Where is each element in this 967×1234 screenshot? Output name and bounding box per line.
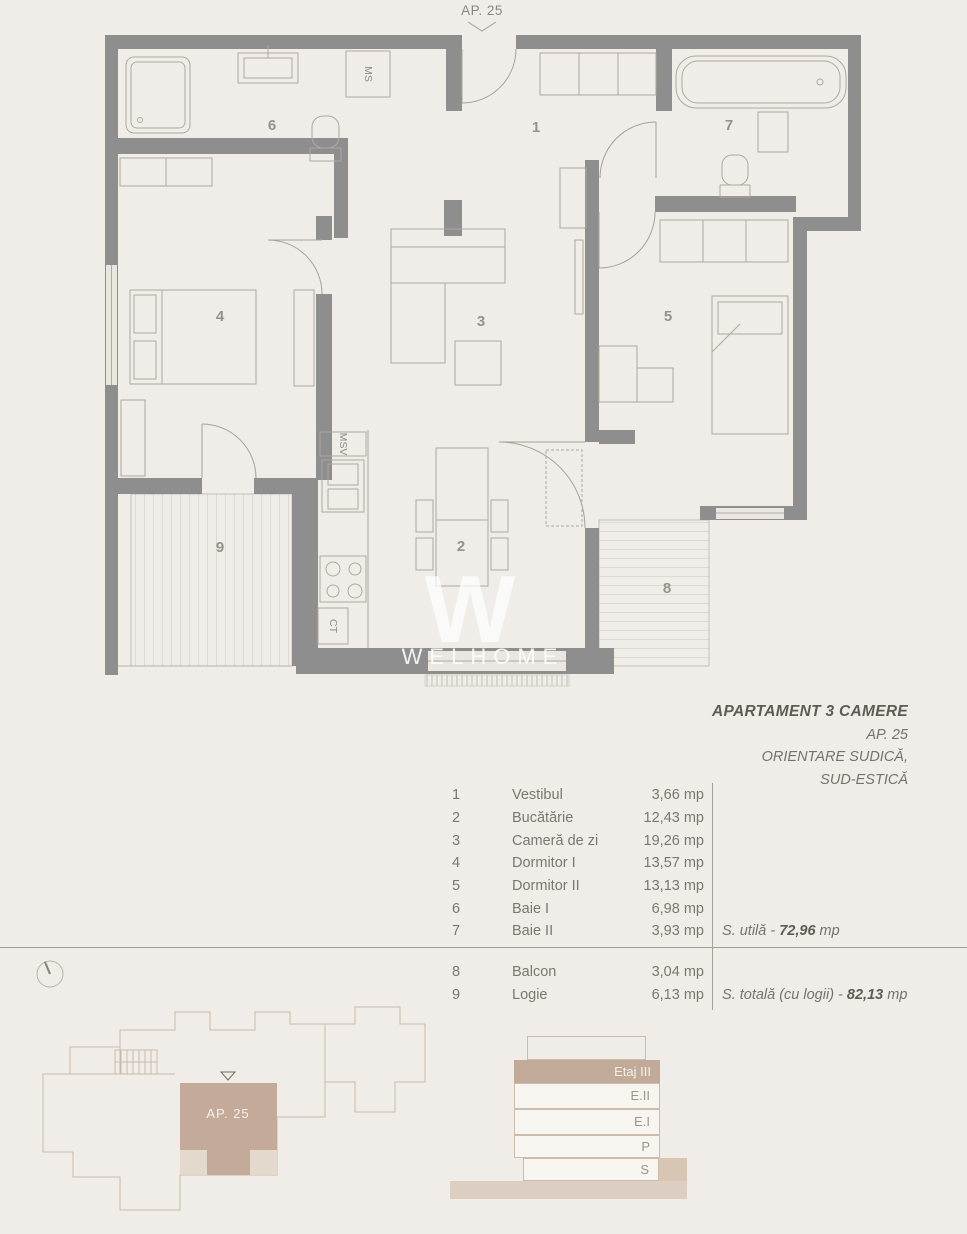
floor-band-subsol: S <box>523 1158 659 1181</box>
row-name: Baie II <box>512 923 622 939</box>
room-number-2: 2 <box>457 538 465 555</box>
legend-header: APARTAMENT 3 CAMERE AP. 25 ORIENTARE SUD… <box>712 701 908 791</box>
table-row: 9 Logie 6,13 mp <box>452 984 704 1007</box>
room-number-7: 7 <box>725 117 733 134</box>
floor-band-parter: P <box>514 1135 660 1158</box>
row-num: 8 <box>452 964 512 980</box>
room-number-5: 5 <box>664 308 672 325</box>
room-number-1: 1 <box>532 119 540 136</box>
row-num: 5 <box>452 878 512 894</box>
table-row: 8 Balcon 3,04 mp <box>452 961 704 984</box>
welhome-watermark: W WELHOME <box>402 556 565 669</box>
table-row: 7 Baie II 3,93 mp <box>452 920 704 943</box>
row-area: 13,13 mp <box>622 878 704 894</box>
row-area: 12,43 mp <box>622 810 704 826</box>
watermark-wordmark: WELHOME <box>402 644 565 669</box>
label-washing-machine: MS <box>362 66 374 82</box>
row-num: 4 <box>452 855 512 871</box>
table-row: 1 Vestibul 3,66 mp <box>452 784 704 807</box>
row-name: Cameră de zi <box>512 833 622 849</box>
row-area: 3,93 mp <box>622 923 704 939</box>
orientation-line-1: ORIENTARE SUDICĂ, <box>712 746 908 769</box>
room-number-4: 4 <box>216 308 225 325</box>
useful-area-unit: mp <box>816 923 840 939</box>
room-number-9: 9 <box>216 539 224 556</box>
room-table: 1 Vestibul 3,66 mp 2 Bucătărie 12,43 mp … <box>452 784 704 943</box>
annex-table: 8 Balcon 3,04 mp 9 Logie 6,13 mp <box>452 961 704 1006</box>
row-name: Dormitor I <box>512 855 622 871</box>
highlighted-unit: AP. 25 <box>180 1072 277 1175</box>
unit-marker-icon <box>221 1072 235 1080</box>
apartment-number: AP. 25 <box>712 724 908 747</box>
useful-area-label: S. utilă - <box>722 923 779 939</box>
room-number-6: 6 <box>268 117 276 134</box>
row-name: Logie <box>512 987 622 1003</box>
row-num: 1 <box>452 787 512 803</box>
entrance-chevron-icon <box>468 22 496 31</box>
room-number-8: 8 <box>663 580 671 597</box>
useful-area-value: 72,96 <box>779 923 815 939</box>
orientation-line-2: SUD-ESTICĂ <box>712 769 908 792</box>
section-roof <box>527 1036 646 1060</box>
row-num: 3 <box>452 833 512 849</box>
deck-logie <box>131 494 292 666</box>
floorplan-page: AP. 25 <box>0 0 967 1234</box>
section-divider-horizontal <box>0 947 967 948</box>
label-boiler: CT <box>327 619 339 634</box>
row-name: Dormitor II <box>512 878 622 894</box>
entrance-unit-label: AP. 25 <box>461 3 503 18</box>
row-area: 13,57 mp <box>622 855 704 871</box>
room-number-3: 3 <box>477 313 485 330</box>
table-row: 3 Cameră de zi 19,26 mp <box>452 829 704 852</box>
table-row: 6 Baie I 6,98 mp <box>452 897 704 920</box>
total-area-label: S. totală (cu logii) - <box>722 987 847 1003</box>
table-row: 5 Dormitor II 13,13 mp <box>452 875 704 898</box>
table-row: 4 Dormitor I 13,57 mp <box>452 852 704 875</box>
row-name: Baie I <box>512 901 622 917</box>
site-plan: AP. 25 <box>25 952 445 1234</box>
floor-plan: AP. 25 <box>0 0 967 700</box>
useful-area-total: S. utilă - 72,96 mp <box>722 920 840 943</box>
total-area-unit: mp <box>883 987 907 1003</box>
row-name: Vestibul <box>512 787 622 803</box>
row-num: 2 <box>452 810 512 826</box>
deck-balcony <box>599 520 709 666</box>
label-dishwasher: MSV <box>337 433 349 456</box>
row-area: 19,26 mp <box>622 833 704 849</box>
row-name: Balcon <box>512 964 622 980</box>
row-area: 6,13 mp <box>622 987 704 1003</box>
row-num: 6 <box>452 901 512 917</box>
floor-band-etaj3: Etaj III <box>514 1060 660 1083</box>
row-name: Bucătărie <box>512 810 622 826</box>
total-area-total: S. totală (cu logii) - 82,13 mp <box>722 984 907 1007</box>
row-num: 9 <box>452 987 512 1003</box>
row-area: 3,66 mp <box>622 787 704 803</box>
table-row: 2 Bucătărie 12,43 mp <box>452 807 704 830</box>
site-unit-label: AP. 25 <box>206 1106 249 1121</box>
floor-band-e1: E.I <box>514 1109 660 1135</box>
row-area: 3,04 mp <box>622 964 704 980</box>
floor-band-e2: E.II <box>514 1083 660 1109</box>
north-compass-icon <box>37 961 63 987</box>
row-num: 7 <box>452 923 512 939</box>
row-area: 6,98 mp <box>622 901 704 917</box>
total-area-value: 82,13 <box>847 987 883 1003</box>
apartment-title: APARTAMENT 3 CAMERE <box>712 701 908 724</box>
section-ground <box>450 1181 687 1199</box>
table-divider-vertical <box>712 783 713 1010</box>
